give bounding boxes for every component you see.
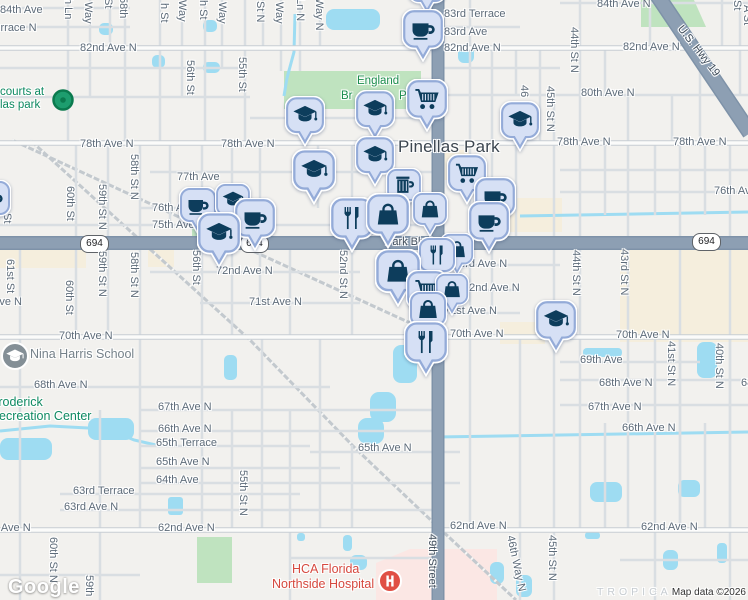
poi-pin-graduation-cap[interactable] [197, 212, 241, 268]
poi-label-recreation-center[interactable]: Broderick [0, 395, 43, 409]
poi-label-hospital[interactable]: HCA Florida [292, 562, 359, 576]
poi-label-recreation-center[interactable]: Recreation Center [0, 409, 91, 423]
street-label: 70th Ave N [450, 328, 504, 340]
street-label: St [102, 0, 114, 8]
street-label: 65th Ave N [156, 456, 210, 468]
street-label: 62nd Ave N [158, 522, 215, 534]
street-label: 55th St [236, 57, 248, 92]
poi-pin-graduation-cap[interactable] [285, 96, 325, 147]
street-label: 60th St [63, 280, 75, 315]
poi-pin-coffee[interactable] [402, 9, 444, 62]
street-label: 45th St N [546, 535, 558, 581]
street-label: 68th Ave N [599, 377, 653, 389]
poi-pin-coffee[interactable] [0, 180, 11, 228]
street-label: 63rd Ave N [64, 501, 118, 513]
street-label: 82nd Ave N [444, 42, 501, 54]
street-label: 78th Ave N [80, 138, 134, 150]
street-label: h St [197, 0, 209, 20]
street-label: 83rd Terrace [444, 8, 506, 20]
street-label: 68th Ave N [741, 377, 748, 389]
street-label: 83rd Terrace N [0, 22, 37, 34]
street-label: 61st St [4, 259, 16, 293]
poi-pin-graduation-cap[interactable] [500, 101, 540, 152]
street-label: 59th St N [96, 251, 108, 297]
park-label-england-brothers[interactable]: England [357, 75, 399, 87]
street-label: 70th Ave N [616, 329, 670, 341]
street-label: 55th St N [237, 470, 249, 516]
poi-label-courts[interactable]: las park [0, 99, 40, 111]
street-label: 45th St N [544, 86, 556, 132]
street-label: 70th Ave N [59, 330, 113, 342]
street-label: 59th St N [96, 184, 108, 230]
park-label-fragment[interactable]: Br [341, 90, 353, 102]
street-label: 82nd Ave N [80, 42, 137, 54]
street-label: 65th Terrace [156, 437, 217, 449]
street-label: 82nd Ave N [623, 41, 680, 53]
street-label: 41st St N [665, 341, 677, 386]
street-label: 58th [117, 0, 129, 18]
street-label: 62nd Ave N [0, 522, 31, 534]
street-label: 44th St N [570, 250, 582, 296]
poi-pin-restaurant[interactable] [404, 321, 448, 377]
street-label: 83rd Ave [444, 26, 487, 38]
street-label: 46 [518, 85, 530, 97]
street-label: 62nd Ave N [450, 520, 507, 532]
street-label: Ln N [294, 0, 306, 21]
street-label: 84th Ave N [597, 0, 651, 10]
street-label: 78th Ave N [557, 136, 611, 148]
street-label: 84th Ave [0, 4, 43, 16]
street-label: 72nd Ave N [463, 282, 520, 294]
street-label: 66th Ave N [158, 423, 212, 435]
street-label: Way [273, 2, 285, 24]
street-label: 52nd St N [337, 250, 349, 299]
poi-label-hospital[interactable]: Northside Hospital [272, 577, 374, 591]
poi-label-nina-harris-school[interactable]: Nina Harris School [30, 347, 134, 361]
street-label: 63rd Terrace [73, 485, 135, 497]
street-label: 67th Ave N [588, 401, 642, 413]
poi-label-courts[interactable]: courts at [0, 86, 44, 98]
street-label: 78th Ave N [673, 136, 727, 148]
street-label: h St [158, 3, 170, 23]
street-label: 64th Ave [156, 474, 199, 486]
street-label: 40th St N [713, 343, 725, 389]
street-label: 66th Ave N [622, 422, 676, 434]
street-label: 71st Ave N [0, 296, 22, 308]
street-label: 80th Ave N [581, 87, 635, 99]
poi-pin-shopping-cart[interactable] [406, 79, 448, 132]
street-label: 78th Ave N [221, 138, 275, 150]
street-label: 58th St N [128, 154, 140, 200]
street-label: 77th Ave [177, 171, 220, 183]
street-label: Way [216, 2, 228, 24]
street-label: Way N [313, 0, 325, 31]
street-label: 65th Ave N [358, 442, 412, 454]
street-label: St N [254, 1, 266, 22]
poi-pin-coffee[interactable] [468, 201, 510, 254]
school-marker[interactable] [0, 341, 30, 376]
route-694-shield: 694 [692, 233, 721, 251]
street-label: 44th St N [568, 27, 580, 73]
street-label: 43rd St N [618, 249, 630, 295]
street-label: 62nd Ave N [641, 521, 698, 533]
street-label: 68th Ave N [34, 379, 88, 391]
google-logo[interactable]: Google [8, 576, 80, 599]
street-label: Way [82, 2, 94, 24]
neighborhood-label: TROPICAL [597, 586, 682, 598]
street-label: 58th St N [128, 252, 140, 298]
poi-pin-graduation-cap[interactable] [355, 90, 395, 141]
street-label: A St [741, 5, 748, 25]
street-label: 71st Ave N [249, 296, 302, 308]
street-label: 67th Ave N [158, 401, 212, 413]
street-label: 60th St [64, 186, 76, 221]
street-label: 69th Ave [580, 354, 623, 366]
park-dot-marker[interactable] [51, 88, 75, 117]
poi-pin-shopping-bag[interactable] [366, 193, 410, 249]
map-attribution: Map data ©2026 [672, 587, 746, 598]
street-label: h Ln [62, 0, 74, 19]
street-label: Way [176, 0, 188, 22]
road-label-49th-street: 49th Street [426, 534, 438, 588]
street-label: 76th Ave N [714, 185, 748, 197]
map-viewport[interactable]: 84th Ave83rd Terrace N84th Ave N83rd Ter… [0, 0, 748, 600]
poi-pin-graduation-cap[interactable] [535, 300, 577, 353]
poi-pin-shopping-bag[interactable] [412, 192, 448, 237]
hospital-marker[interactable] [377, 568, 403, 599]
street-label: 56th St [184, 60, 196, 95]
street-label: 59th [83, 575, 95, 596]
